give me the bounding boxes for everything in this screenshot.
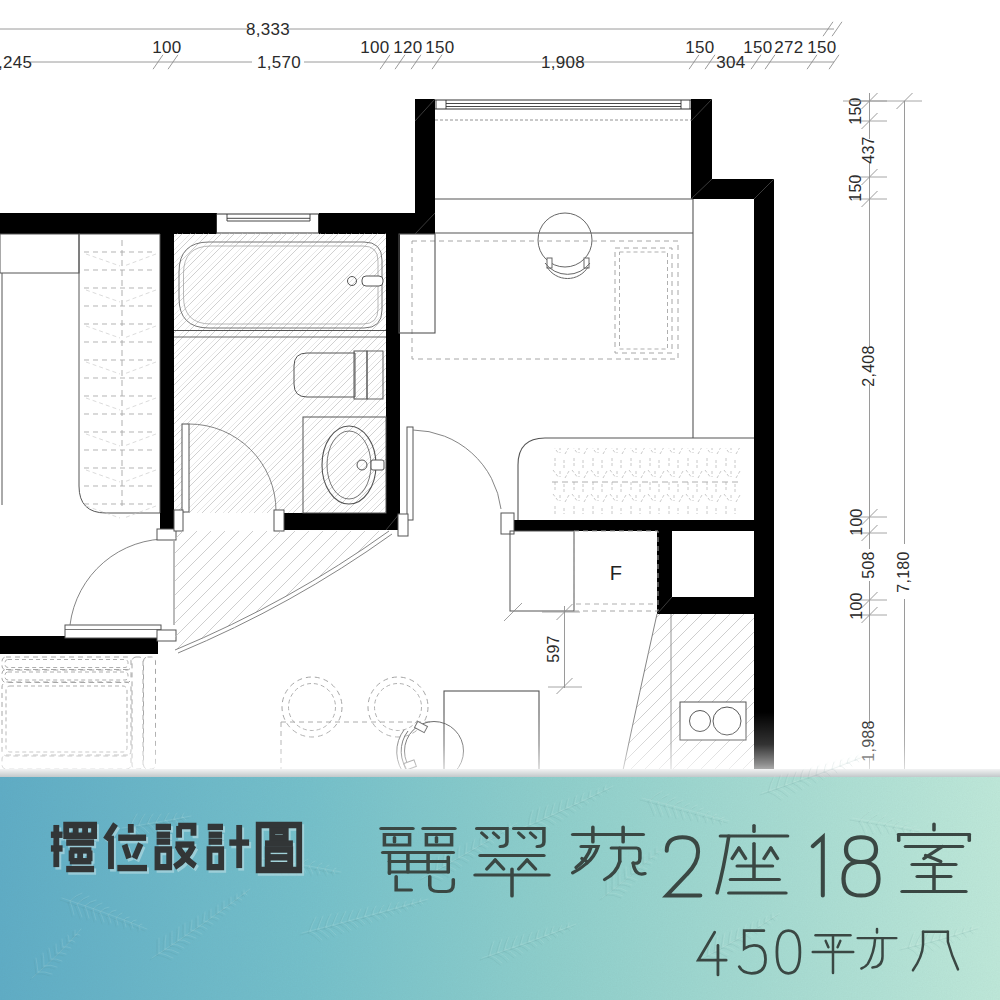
svg-text:437: 437 [860,136,877,164]
svg-text:150: 150 [685,38,714,57]
svg-text:150: 150 [847,174,864,202]
svg-text:150: 150 [807,38,836,57]
svg-text:1,570: 1,570 [257,53,301,72]
svg-text:272: 272 [774,38,803,57]
svg-text:7,180: 7,180 [895,551,912,593]
svg-text:2,408: 2,408 [860,345,877,387]
svg-text:100: 100 [848,508,865,536]
svg-text:150: 150 [743,38,772,57]
svg-text:,245: ,245 [0,53,32,72]
svg-text:304: 304 [716,53,745,72]
svg-text:8,333: 8,333 [246,20,290,39]
svg-text:150: 150 [425,38,454,57]
svg-text:100: 100 [152,38,181,57]
svg-text:F: F [610,562,623,584]
svg-text:597: 597 [545,635,562,663]
svg-text:1,908: 1,908 [541,53,585,72]
svg-text:120: 120 [393,38,422,57]
svg-text:100: 100 [848,592,865,620]
svg-text:508: 508 [860,551,877,579]
svg-text:100: 100 [360,38,389,57]
